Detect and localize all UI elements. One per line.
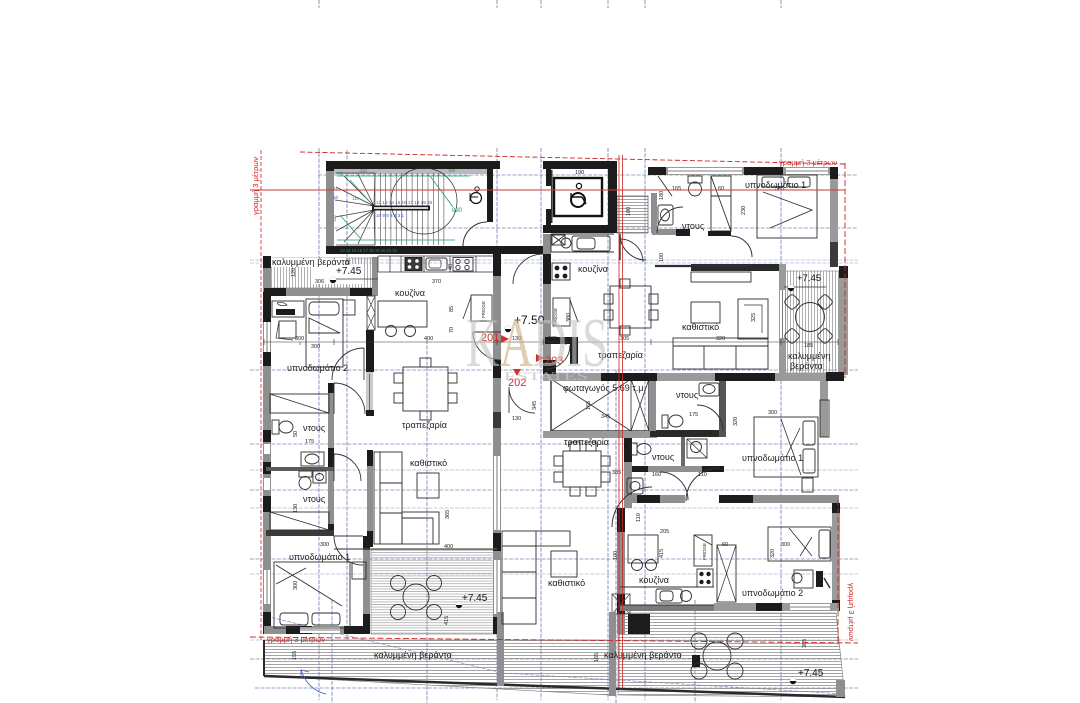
svg-text:890: 890 xyxy=(452,208,463,214)
svg-text:ντους: ντους xyxy=(303,423,326,433)
svg-text:400: 400 xyxy=(444,544,453,550)
svg-text:γραμμή 3 μέτρων: γραμμή 3 μέτρων xyxy=(267,635,325,644)
svg-text:160: 160 xyxy=(652,472,661,478)
svg-text:12 13 14 15 16 17 18 19 20: 12 13 14 15 16 17 18 19 20 xyxy=(376,200,433,205)
svg-text:ESTATES: ESTATES xyxy=(504,369,588,383)
svg-text:ντους: ντους xyxy=(303,494,326,504)
svg-text:100: 100 xyxy=(626,207,632,216)
svg-text:325: 325 xyxy=(751,313,757,322)
svg-text:υπνοδωμάτιο 2: υπνοδωμάτιο 2 xyxy=(287,363,348,373)
svg-text:385: 385 xyxy=(612,470,621,476)
svg-text:190: 190 xyxy=(575,170,584,176)
svg-text:ντους: ντους xyxy=(676,390,699,400)
svg-text:345: 345 xyxy=(532,401,538,410)
svg-text:300: 300 xyxy=(295,336,304,342)
svg-text:10: 10 xyxy=(333,195,339,200)
svg-text:185: 185 xyxy=(804,343,813,349)
svg-text:305: 305 xyxy=(802,639,808,648)
svg-text:155: 155 xyxy=(292,651,298,660)
svg-text:165: 165 xyxy=(594,653,600,662)
svg-text:110: 110 xyxy=(352,196,359,201)
svg-text:καθιστικό: καθιστικό xyxy=(548,578,585,588)
svg-text:415: 415 xyxy=(444,616,450,625)
svg-text:310: 310 xyxy=(360,168,368,173)
svg-text:γραμμή 3 μέτρων: γραμμή 3 μέτρων xyxy=(251,157,260,215)
svg-text:FRIDGE: FRIDGE xyxy=(702,543,707,560)
svg-text:400: 400 xyxy=(424,336,433,342)
svg-text:85: 85 xyxy=(449,306,455,312)
svg-text:καλυμμένη βεράντα: καλυμμένη βεράντα xyxy=(374,650,452,660)
svg-text:κουζίνα: κουζίνα xyxy=(395,288,425,298)
svg-text:185: 185 xyxy=(448,168,456,173)
svg-text:υπνοδωμάτιο 2: υπνοδωμάτιο 2 xyxy=(742,588,803,598)
svg-text:230: 230 xyxy=(741,206,747,215)
svg-text:τραπεζαρία: τραπεζαρία xyxy=(564,437,609,447)
svg-text:300: 300 xyxy=(320,542,329,548)
svg-text:150: 150 xyxy=(652,170,661,176)
svg-text:120: 120 xyxy=(291,268,297,277)
svg-text:320: 320 xyxy=(716,336,725,342)
svg-text:305: 305 xyxy=(620,336,629,342)
svg-text:50: 50 xyxy=(293,431,299,437)
svg-text:306: 306 xyxy=(315,279,324,285)
svg-text:60: 60 xyxy=(722,542,728,548)
svg-text:165: 165 xyxy=(672,186,681,192)
svg-text:γραμμή 3 μέτρων: γραμμή 3 μέτρων xyxy=(779,158,837,167)
svg-text:345: 345 xyxy=(601,414,610,420)
svg-text:ντους: ντους xyxy=(652,452,675,462)
svg-text:110: 110 xyxy=(698,472,707,478)
svg-text:300: 300 xyxy=(768,410,777,416)
svg-text:γραμμή 3 μέτρων: γραμμή 3 μέτρων xyxy=(847,583,856,641)
svg-text:+7.45: +7.45 xyxy=(797,273,821,284)
svg-text:70: 70 xyxy=(449,327,455,333)
svg-text:205: 205 xyxy=(660,529,669,535)
svg-text:110: 110 xyxy=(332,215,337,222)
svg-text:βεράντα: βεράντα xyxy=(790,361,823,371)
svg-text:100: 100 xyxy=(659,253,665,262)
svg-text:κουζίνα: κουζίνα xyxy=(639,575,669,585)
svg-text:415: 415 xyxy=(659,549,665,558)
svg-text:ντους: ντους xyxy=(682,221,705,231)
svg-text:180: 180 xyxy=(659,191,665,200)
svg-text:365: 365 xyxy=(445,510,451,519)
svg-text:130: 130 xyxy=(293,504,299,513)
svg-text:320: 320 xyxy=(770,549,776,558)
svg-text:10 9 8 6 4 3 1: 10 9 8 6 4 3 1 xyxy=(376,213,405,218)
svg-text:300: 300 xyxy=(311,344,320,350)
svg-text:175: 175 xyxy=(305,439,314,445)
svg-text:130: 130 xyxy=(512,416,521,422)
svg-text:370: 370 xyxy=(432,279,441,285)
svg-text:+7.45: +7.45 xyxy=(798,668,824,679)
svg-text:υπνοδωμάτιο 1: υπνοδωμάτιο 1 xyxy=(289,552,350,562)
svg-text:110: 110 xyxy=(636,513,642,522)
svg-text:τραπεζαρία: τραπεζαρία xyxy=(402,420,447,430)
svg-text:καλυμμένη: καλυμμένη xyxy=(788,351,831,361)
svg-text:κουζίνα: κουζίνα xyxy=(578,264,608,274)
svg-text:φωταγωγός 5.69 τ.μ.: φωταγωγός 5.69 τ.μ. xyxy=(563,383,646,393)
svg-text:300: 300 xyxy=(293,581,299,590)
svg-text:300: 300 xyxy=(781,542,790,548)
svg-text:40: 40 xyxy=(448,264,454,270)
svg-text:13 14 15 16 17 18 19 20 21 22: 13 14 15 16 17 18 19 20 21 22 xyxy=(340,248,398,253)
svg-text:175: 175 xyxy=(689,412,698,418)
svg-text:+7.45: +7.45 xyxy=(462,593,488,604)
svg-text:+7.45: +7.45 xyxy=(336,266,362,277)
svg-text:325: 325 xyxy=(775,186,784,192)
svg-text:320: 320 xyxy=(733,417,739,426)
svg-text:καθιστικό: καθιστικό xyxy=(682,322,719,332)
svg-text:καλυμμένη βεράντα: καλυμμένη βεράντα xyxy=(604,650,682,660)
svg-text:καθιστικό: καθιστικό xyxy=(410,458,447,468)
svg-text:60: 60 xyxy=(718,186,724,192)
svg-text:66: 66 xyxy=(338,171,343,176)
svg-text:100: 100 xyxy=(613,551,619,560)
svg-text:345: 345 xyxy=(703,431,712,437)
svg-text:υπνοδωμάτιο 1: υπνοδωμάτιο 1 xyxy=(742,453,803,463)
svg-text:165: 165 xyxy=(586,401,592,410)
